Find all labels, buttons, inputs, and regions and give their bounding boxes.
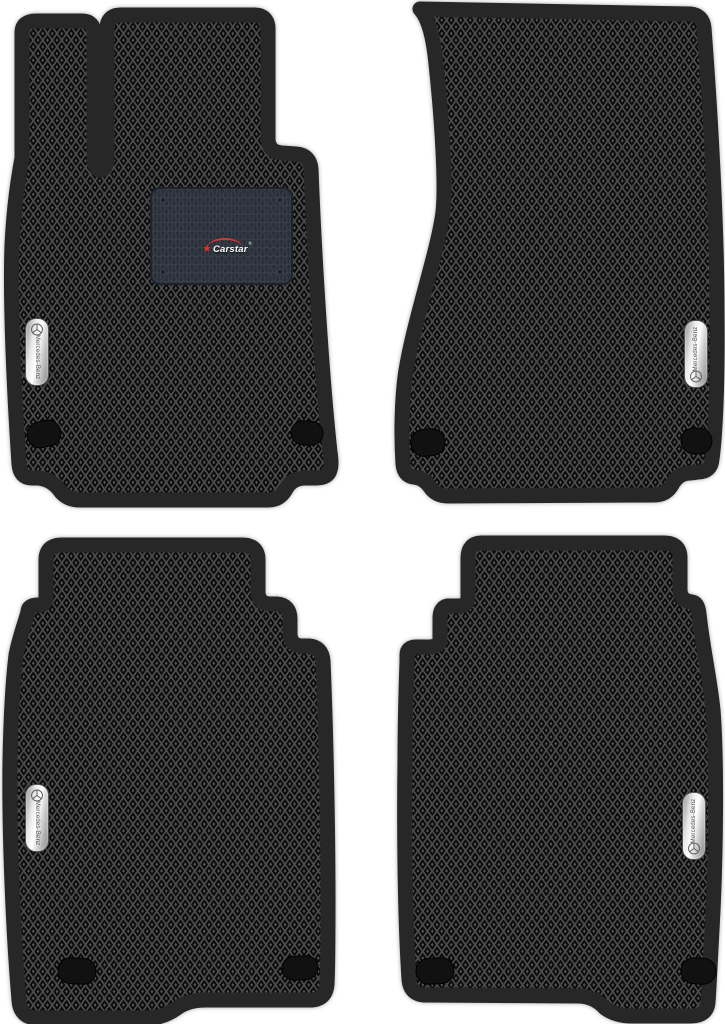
oem-badge-text: Mercedes-Benz (34, 334, 40, 379)
fastener-clip (57, 957, 96, 985)
mercedes-star-icon (690, 370, 703, 383)
mat-rear-right (405, 543, 716, 1016)
fastener-clip (281, 955, 318, 981)
rivet-icon (277, 197, 282, 202)
fastener-clip (415, 957, 454, 985)
oem-badge-text: Mercedes-Benz (691, 799, 697, 844)
oem-badge-text: Mercedes-Benz (693, 327, 699, 372)
mercedes-star-icon (688, 842, 701, 855)
mat-rear-left (10, 545, 328, 1018)
star-icon: ★ (202, 244, 213, 254)
heel-pad-logo: ★ Carstar ® (196, 240, 258, 258)
oem-badge-rear-left: Mercedes-Benz (25, 784, 49, 852)
fastener-clip (680, 957, 716, 985)
oem-badge-front-right: Mercedes-Benz (684, 320, 708, 388)
fastener-clip (290, 420, 324, 446)
rivet-icon (160, 269, 165, 274)
rivet-icon (160, 197, 165, 202)
logo-swoosh (208, 238, 242, 247)
product-photo-car-mats: ★ Carstar ® Mercedes-Benz Mercedes-Benz … (0, 0, 725, 1024)
oem-badge-rear-right: Mercedes-Benz (682, 792, 706, 860)
mat-front-right (402, 9, 717, 496)
oem-badge-text: Mercedes-Benz (34, 800, 40, 845)
heel-pad (151, 188, 292, 284)
floor-mats-illustration (0, 0, 725, 1024)
fastener-clip (680, 427, 712, 455)
oem-badge-front-left: Mercedes-Benz (25, 318, 49, 386)
rivet-icon (277, 269, 282, 274)
registered-mark: ® (249, 241, 252, 246)
